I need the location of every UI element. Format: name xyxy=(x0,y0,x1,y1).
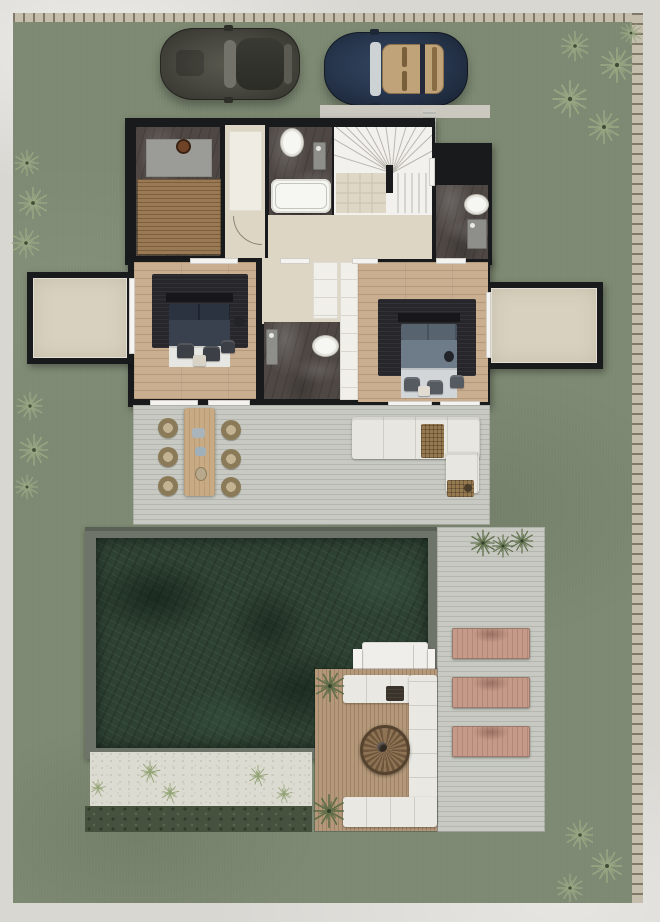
grass-tuft-icon xyxy=(155,778,185,808)
armchair xyxy=(177,343,194,358)
palm-tree-icon xyxy=(13,473,41,501)
sun-lounger-clay xyxy=(452,726,530,757)
terrace-door xyxy=(486,292,491,358)
door-opening xyxy=(190,258,238,264)
toilet xyxy=(312,335,339,357)
window xyxy=(129,278,135,354)
convertible-rollbar xyxy=(420,44,425,94)
wardrobe xyxy=(313,262,338,319)
door-opening xyxy=(436,258,466,264)
dining-chair xyxy=(221,477,241,497)
terrace-right xyxy=(491,288,597,363)
palm-tree-icon xyxy=(588,847,626,885)
wicker-ottoman xyxy=(421,424,444,458)
shrub-icon xyxy=(508,527,536,555)
bathtub xyxy=(271,179,331,213)
bed-headboard xyxy=(166,293,233,302)
convertible-rear-bench xyxy=(432,47,437,91)
palm-tree-icon xyxy=(597,45,637,85)
stone-wall-top xyxy=(13,13,642,22)
outdoor-cushion-bank xyxy=(343,797,437,827)
sedan-mirror xyxy=(224,25,233,31)
palm-tree-icon xyxy=(618,20,644,46)
palm-tree-icon xyxy=(14,390,46,422)
shrub-icon xyxy=(310,792,348,830)
wall-sink xyxy=(313,142,326,170)
convertible-seatback xyxy=(402,47,407,67)
palm-tree-icon xyxy=(9,226,43,260)
spa-wood-platform xyxy=(137,179,221,255)
dining-chair xyxy=(158,418,178,438)
convertible-seatback xyxy=(402,71,407,91)
dining-chair xyxy=(221,449,241,469)
door-opening xyxy=(429,158,435,186)
sun-lounger-clay xyxy=(452,628,530,659)
wall-sink xyxy=(467,219,487,249)
coffee-table xyxy=(193,355,206,366)
terrace-left xyxy=(33,278,127,358)
sedan-mirror xyxy=(224,97,233,103)
table-dishes xyxy=(195,447,206,456)
grass-tuft-icon xyxy=(85,775,111,801)
toilet xyxy=(464,194,489,215)
palm-tree-icon xyxy=(12,148,42,178)
sedan-windshield xyxy=(224,40,236,88)
wall-sink xyxy=(266,329,278,365)
convertible-car xyxy=(324,32,468,106)
sedan-car xyxy=(160,28,300,100)
plant-pot xyxy=(464,484,472,492)
fire-pit-center xyxy=(377,742,387,752)
bed-headboard xyxy=(398,313,460,322)
palm-tree-icon xyxy=(558,29,592,63)
convertible-mirror xyxy=(370,29,379,35)
dining-chair xyxy=(158,476,178,496)
spa-bowl xyxy=(176,139,191,154)
palm-tree-icon xyxy=(585,108,623,146)
dining-chair xyxy=(158,447,178,467)
door-opening xyxy=(352,258,378,264)
hall-floor xyxy=(268,215,432,259)
palm-tree-icon xyxy=(16,432,52,468)
corridor-runner xyxy=(229,131,262,211)
stone-wall-right xyxy=(632,13,643,903)
bed-pillows xyxy=(401,324,457,340)
bed-pillows xyxy=(169,304,230,320)
armchair xyxy=(221,340,235,353)
sedan-roof xyxy=(236,38,284,90)
shrub-icon xyxy=(312,668,348,704)
dark-bench xyxy=(386,686,404,701)
sedan-hood-vent xyxy=(176,50,204,76)
table-dishes xyxy=(192,428,205,438)
toilet xyxy=(280,128,304,157)
palm-tree-icon xyxy=(554,872,586,904)
sedan-rear-window xyxy=(284,44,292,84)
bedside-stool xyxy=(444,351,454,362)
bedside-stool xyxy=(234,316,245,327)
dining-chair xyxy=(221,420,241,440)
convertible-windshield xyxy=(370,42,381,96)
palm-tree-icon xyxy=(15,185,51,221)
wardrobe xyxy=(340,262,358,400)
door-opening xyxy=(280,258,310,264)
armchair xyxy=(450,375,464,388)
staircase xyxy=(334,127,432,215)
sun-lounger-clay xyxy=(452,677,530,708)
coffee-table xyxy=(418,386,430,396)
grass-tuft-icon xyxy=(270,780,298,808)
hedge-strip xyxy=(85,806,312,832)
table-centerpiece xyxy=(195,467,207,481)
entry-walkway xyxy=(320,105,490,118)
floor-plan-rendering xyxy=(0,0,660,922)
